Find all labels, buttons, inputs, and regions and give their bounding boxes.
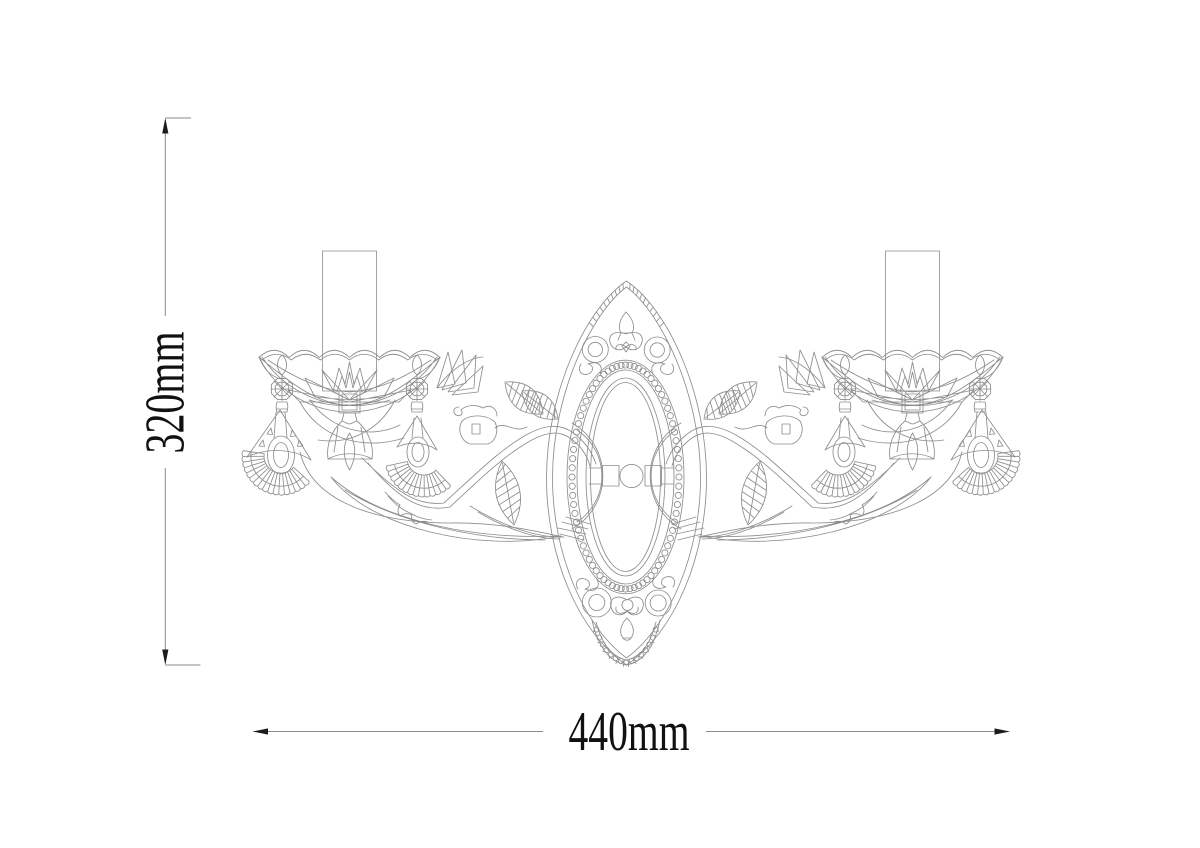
svg-text:440mm: 440mm	[569, 701, 690, 763]
svg-text:320mm: 320mm	[135, 332, 197, 454]
